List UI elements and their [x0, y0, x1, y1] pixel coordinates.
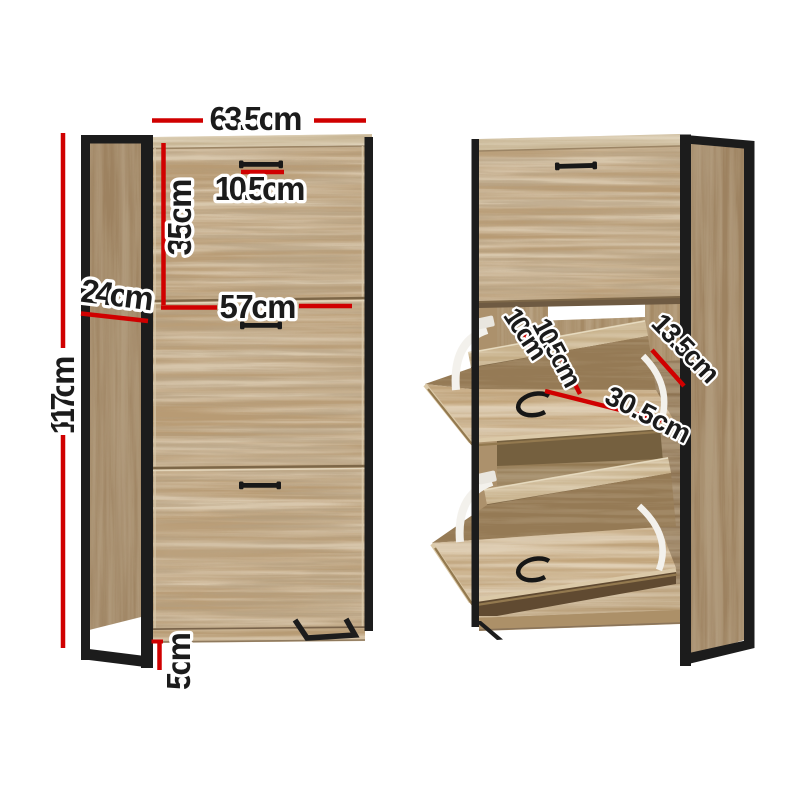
svg-text:63.5cm: 63.5cm — [210, 100, 303, 137]
svg-text:57cm: 57cm — [220, 288, 297, 325]
svg-text:117cm: 117cm — [44, 356, 81, 435]
svg-text:10.5cm: 10.5cm — [215, 170, 306, 207]
svg-text:35cm: 35cm — [161, 179, 198, 256]
svg-text:5cm: 5cm — [160, 632, 197, 690]
